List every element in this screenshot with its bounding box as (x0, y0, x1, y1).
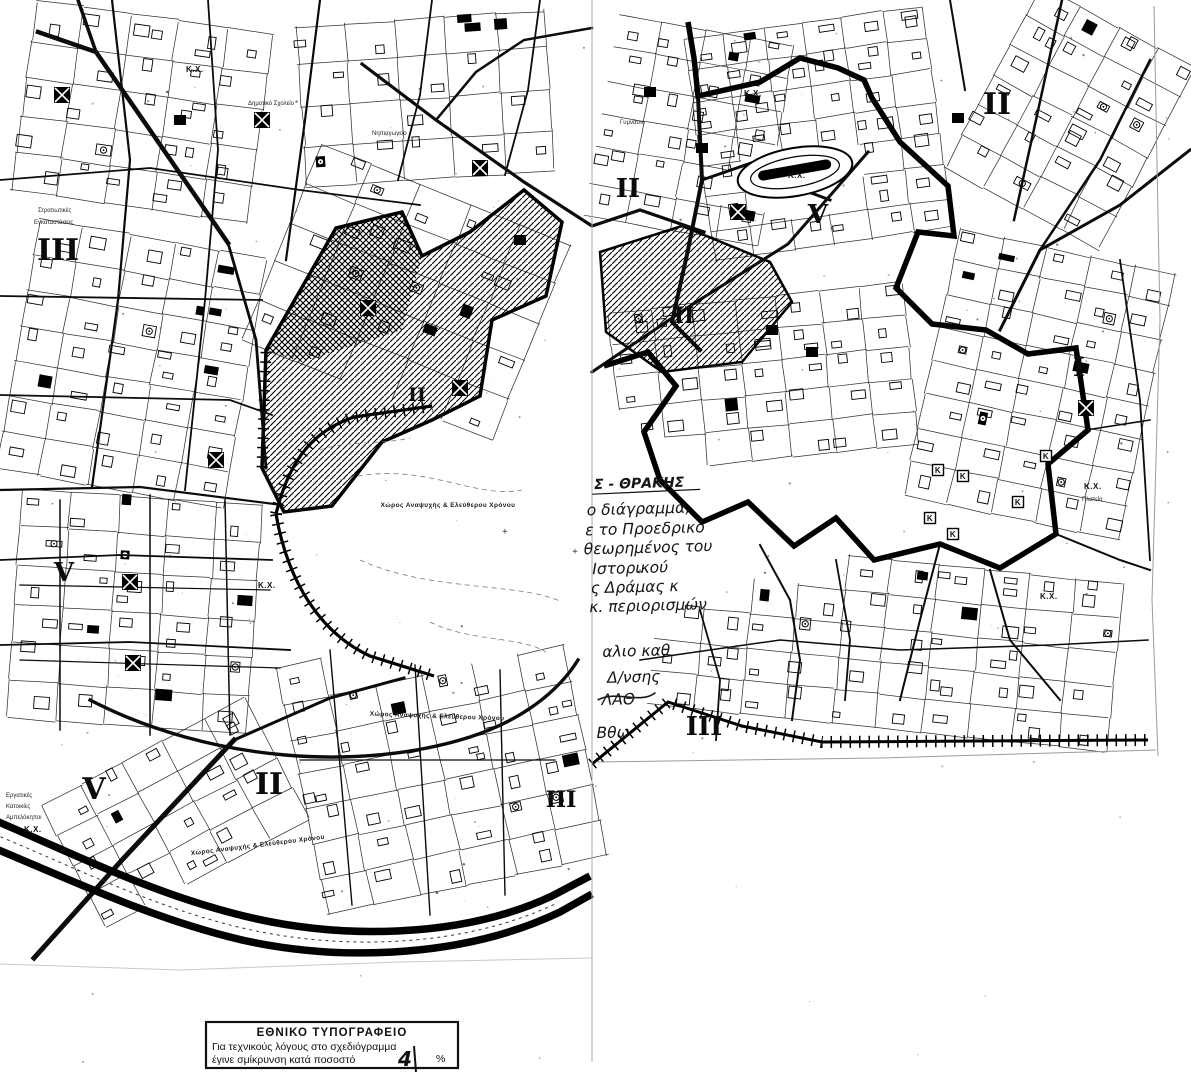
speckle (464, 900, 465, 901)
speckle (827, 528, 828, 529)
speckle (461, 625, 463, 627)
speckle (385, 233, 386, 234)
landmark-solid-block (952, 113, 964, 123)
speckle (194, 87, 195, 88)
speckle (145, 715, 146, 716)
landmark-solid-block (174, 115, 186, 125)
zone-numeral: II (616, 174, 640, 204)
speckle (903, 531, 905, 533)
speckle (249, 619, 250, 620)
speckle (306, 380, 307, 381)
speckle (1167, 502, 1168, 503)
speckle (645, 334, 646, 335)
facility-label: Κατοικίες (6, 804, 30, 810)
speckle (1120, 442, 1122, 444)
kx-label: Κ.Χ. (24, 825, 42, 834)
speckle (436, 892, 439, 895)
zone-numeral: V (81, 772, 106, 807)
zone-numeral: II (983, 87, 1011, 122)
speckle (711, 670, 712, 671)
facility-label: Δημοτικό Σχολείο (248, 100, 295, 107)
speckle (544, 339, 546, 341)
speckle (437, 400, 438, 401)
speckle (734, 40, 736, 42)
speckle (823, 275, 825, 277)
landmark-crossed-square (452, 380, 468, 396)
speckle (843, 574, 845, 576)
building (237, 595, 252, 605)
building (122, 494, 131, 504)
speckle (516, 278, 518, 280)
facility-label: Εργατικές (6, 792, 32, 799)
speckle (159, 365, 161, 367)
speckle (295, 100, 297, 102)
speckle (122, 313, 124, 315)
building (209, 308, 221, 316)
building (38, 375, 52, 388)
speckle (490, 381, 491, 382)
speckle (460, 682, 462, 684)
speckle (595, 785, 597, 787)
speckle (126, 626, 128, 628)
speckle (763, 260, 764, 261)
speckle (225, 308, 227, 310)
speckle (278, 395, 280, 397)
speckle (106, 826, 108, 828)
handwriting-line: ο διάγραμμα, (586, 499, 690, 520)
building (465, 23, 481, 32)
speckle (1011, 197, 1012, 198)
speckle (698, 251, 700, 253)
speckle (486, 392, 487, 393)
speckle (993, 298, 995, 300)
city-plan-map: ΚΚΚΚΚΚ III II V II II II I V V II III II… (0, 0, 1191, 1077)
speckle (1119, 816, 1121, 818)
open-space-label: Χώρος Αναψυχής & Ελεύθερου Χρόνου (381, 501, 516, 509)
speckle (125, 278, 127, 280)
landmark-crossed-square (254, 112, 270, 128)
zone-numeral: II (255, 767, 283, 802)
handwriting-line: Βθω (596, 723, 630, 742)
speckle (1102, 330, 1104, 332)
building (961, 607, 977, 620)
speckle (755, 220, 756, 221)
speckle (493, 207, 494, 208)
speckle (317, 284, 318, 285)
speckle (115, 660, 117, 662)
speckle (983, 578, 984, 579)
speckle (1086, 593, 1088, 595)
speckle (367, 268, 368, 269)
speckle (160, 327, 162, 329)
speckle (52, 503, 54, 505)
speckle (724, 145, 726, 147)
plateia-label: Πλατεία (1082, 497, 1103, 503)
speckle (61, 744, 63, 746)
zone-numeral: II (408, 384, 426, 406)
speckle (866, 94, 867, 95)
speckle (296, 210, 297, 211)
speckle (460, 238, 462, 240)
landmark-solid-block (806, 347, 818, 357)
speckle (1070, 37, 1072, 39)
stamp-box: ΕΘΝΙΚΟ ΤΥΠΟΓΡΑΦΕΙΟ Για τεχνικούς λόγους … (206, 1022, 458, 1072)
speckle (555, 276, 556, 277)
speckle (913, 410, 914, 411)
handwriting-line: αλιο καθ (602, 641, 671, 661)
speckle (941, 765, 943, 767)
speckle (1022, 490, 1024, 492)
landmark-crossed-square (472, 160, 488, 176)
speckle (507, 160, 510, 163)
speckle (801, 94, 802, 95)
speckle (789, 482, 791, 484)
lake-mark: + (572, 547, 578, 557)
zone-numeral: I (1073, 353, 1085, 383)
speckle (741, 303, 742, 304)
kx-label: Κ.Χ. (258, 581, 276, 590)
speckle (456, 520, 457, 521)
speckle (743, 114, 745, 116)
speckle (538, 1057, 540, 1059)
landmark-solid-block (696, 143, 708, 153)
speckle (215, 295, 216, 296)
speckle (456, 173, 457, 174)
speckle (1082, 54, 1084, 56)
speckle (360, 975, 362, 977)
landmark-solid-block (644, 87, 656, 97)
speckle (108, 794, 110, 796)
speckle (452, 692, 454, 694)
speckle (390, 127, 392, 129)
landmark-crossed-square (360, 300, 376, 316)
building (87, 625, 98, 633)
speckle (887, 274, 889, 276)
speckle (354, 304, 356, 306)
speckle (1073, 110, 1075, 112)
speckle (419, 88, 421, 90)
speckle (1095, 132, 1097, 134)
speckle (369, 59, 370, 60)
k-box-symbol: Κ (925, 513, 936, 524)
facility-label: Εγκαταστάσεις (34, 219, 73, 226)
k-box-symbol: Κ (948, 529, 959, 540)
k-box-symbol: Κ (958, 471, 969, 482)
speckle (139, 60, 140, 61)
speckle (189, 284, 190, 285)
speckle (1168, 138, 1170, 140)
svg-text:Κ: Κ (1043, 452, 1049, 461)
speckle (767, 555, 769, 557)
speckle (830, 227, 833, 230)
speckle (282, 369, 284, 371)
landmark-crossed-square (54, 87, 70, 103)
handwriting-line: ς Δράμας κ (591, 577, 680, 597)
building (744, 32, 756, 40)
speckle (478, 826, 479, 827)
zone-numeral: V (53, 558, 75, 588)
kx-label: Κ.Χ. (1040, 592, 1058, 601)
speckle (971, 435, 972, 436)
speckle (225, 405, 227, 407)
speckle (920, 128, 921, 129)
speckle (1101, 106, 1103, 108)
speckle (991, 625, 992, 626)
k-box-symbol: Κ (933, 465, 944, 476)
speckle (618, 368, 621, 371)
speckle (802, 369, 803, 370)
speckle (385, 480, 386, 481)
speckle (182, 593, 183, 594)
svg-text:Κ: Κ (927, 514, 933, 523)
stamp-percent: % (436, 1053, 445, 1065)
speckle (887, 452, 888, 453)
speckle (1066, 542, 1068, 544)
k-box-symbol: Κ (1013, 497, 1024, 508)
facility-label: Γυμνάσιο (620, 119, 646, 126)
speckle (316, 554, 318, 556)
building (494, 19, 506, 30)
speckle (498, 200, 499, 201)
speckle (1013, 484, 1015, 486)
landmark-crossed-square (122, 574, 138, 590)
speckle (474, 241, 475, 242)
speckle (966, 309, 968, 311)
speckle (1167, 451, 1169, 453)
facility-label: Νηπιαγωγείο (372, 131, 407, 137)
speckle (86, 732, 88, 734)
kx-label: Κ.Χ. (1084, 482, 1102, 491)
speckle (141, 603, 142, 604)
speckle (482, 85, 484, 87)
landmark-solid-block (766, 325, 778, 335)
k-box-symbol: Κ (1041, 451, 1052, 462)
speckle (77, 869, 79, 871)
building (155, 689, 171, 701)
speckle (718, 438, 720, 440)
speckle (764, 572, 766, 574)
speckle (92, 103, 94, 105)
facility-label: Αμπελόκηποι (6, 814, 42, 821)
speckle (1040, 411, 1041, 412)
speckle (82, 1061, 84, 1063)
speckle (279, 129, 281, 131)
handwriting-line: Δ/νσης (606, 667, 661, 686)
kx-label: Κ.Χ. (744, 89, 762, 98)
stamp-line2: έγινε σμίκρυνση κατά ποσοστό (212, 1054, 355, 1066)
speckle (568, 868, 570, 870)
zone-numeral: II (674, 303, 695, 329)
landmark-solid-block (514, 235, 526, 245)
speckle (549, 135, 550, 136)
speckle (341, 890, 343, 892)
speckle (1019, 300, 1021, 302)
speckle (726, 591, 727, 592)
speckle (41, 91, 42, 92)
speckle (455, 798, 456, 799)
speckle (1033, 761, 1035, 763)
speckle (154, 451, 157, 454)
stamp-line1: Για τεχνικούς λόγους στο σχεδιόγραμμα (212, 1041, 396, 1053)
speckle (735, 886, 737, 888)
handwriting-line: κ. περιορισμών (589, 595, 707, 616)
speckle (399, 622, 400, 623)
speckle (118, 675, 119, 676)
speckle (583, 47, 585, 49)
speckle (256, 241, 258, 243)
building (760, 589, 769, 601)
speckle (463, 863, 465, 865)
speckle (1056, 243, 1058, 245)
lake-mark: + (502, 527, 508, 537)
svg-text:Κ: Κ (1015, 498, 1021, 507)
speckle (741, 727, 743, 729)
speckle (474, 821, 476, 823)
speckle (321, 264, 322, 265)
speckle (346, 704, 347, 705)
speckle (1123, 566, 1125, 568)
speckle (836, 33, 838, 35)
speckle (519, 416, 521, 418)
speckle (299, 762, 301, 764)
scanned-city-plan-page: ΚΚΚΚΚΚ III II V II II II I V V II III II… (0, 0, 1191, 1077)
landmark-crossed-square (208, 452, 224, 468)
speckle (92, 993, 94, 995)
speckle (1038, 138, 1039, 139)
speckle (997, 627, 999, 629)
zone-numeral: III (546, 787, 577, 813)
landmark-crossed-square (125, 655, 141, 671)
speckle (497, 639, 499, 641)
stamp-title: ΕΘΝΙΚΟ ΤΥΠΟΓΡΑΦΕΙΟ (257, 1027, 408, 1039)
building (725, 398, 738, 411)
speckle (171, 210, 172, 211)
speckle (147, 100, 149, 102)
speckle (245, 534, 246, 535)
handwriting-line: Ιστορικού (592, 558, 668, 578)
speckle (976, 318, 978, 320)
speckle (1166, 117, 1167, 118)
speckle (250, 622, 252, 624)
handwriting-line: θεωρημένος του (583, 537, 712, 558)
speckle (679, 219, 682, 222)
speckle (166, 91, 169, 94)
zone-numeral: III (686, 712, 723, 742)
speckle (842, 184, 844, 186)
speckle (758, 61, 760, 63)
speckle (328, 297, 329, 298)
speckle (389, 311, 391, 313)
speckle (487, 907, 488, 908)
handwriting-line: ε το Προεδρικό (585, 518, 706, 539)
stamp-handwritten-value: 4 (397, 1047, 412, 1071)
speckle (124, 563, 125, 564)
speckle (264, 440, 265, 441)
speckle (941, 80, 943, 82)
kx-label: Κ.Χ. (788, 171, 806, 180)
facility-label: Στρατιωτικές (38, 207, 71, 214)
speckle (169, 554, 171, 556)
svg-text:Κ: Κ (960, 472, 966, 481)
landmark-crossed-square (730, 204, 746, 220)
speckle (1025, 353, 1027, 355)
svg-text:Κ: Κ (935, 466, 941, 475)
speckle (917, 1054, 919, 1056)
speckle (1072, 231, 1073, 232)
speckle (387, 820, 389, 822)
building (457, 14, 471, 22)
building (917, 572, 928, 580)
speckle (190, 165, 191, 166)
speckle (1085, 360, 1086, 361)
speckle (809, 1001, 810, 1002)
landmark-crossed-square (1078, 400, 1094, 416)
handwriting-line: ΛΑΘ (600, 690, 635, 709)
kx-label: Κ.Χ. (186, 65, 204, 74)
speckle (692, 752, 693, 753)
svg-text:Κ: Κ (950, 530, 956, 539)
speckle (985, 995, 986, 996)
speckle (1016, 258, 1018, 260)
speckle (232, 602, 234, 604)
zone-numeral: III (37, 233, 79, 268)
zone-numeral: V (807, 200, 829, 230)
speckle (397, 618, 398, 619)
speckle (959, 207, 960, 208)
speckle (178, 253, 179, 254)
